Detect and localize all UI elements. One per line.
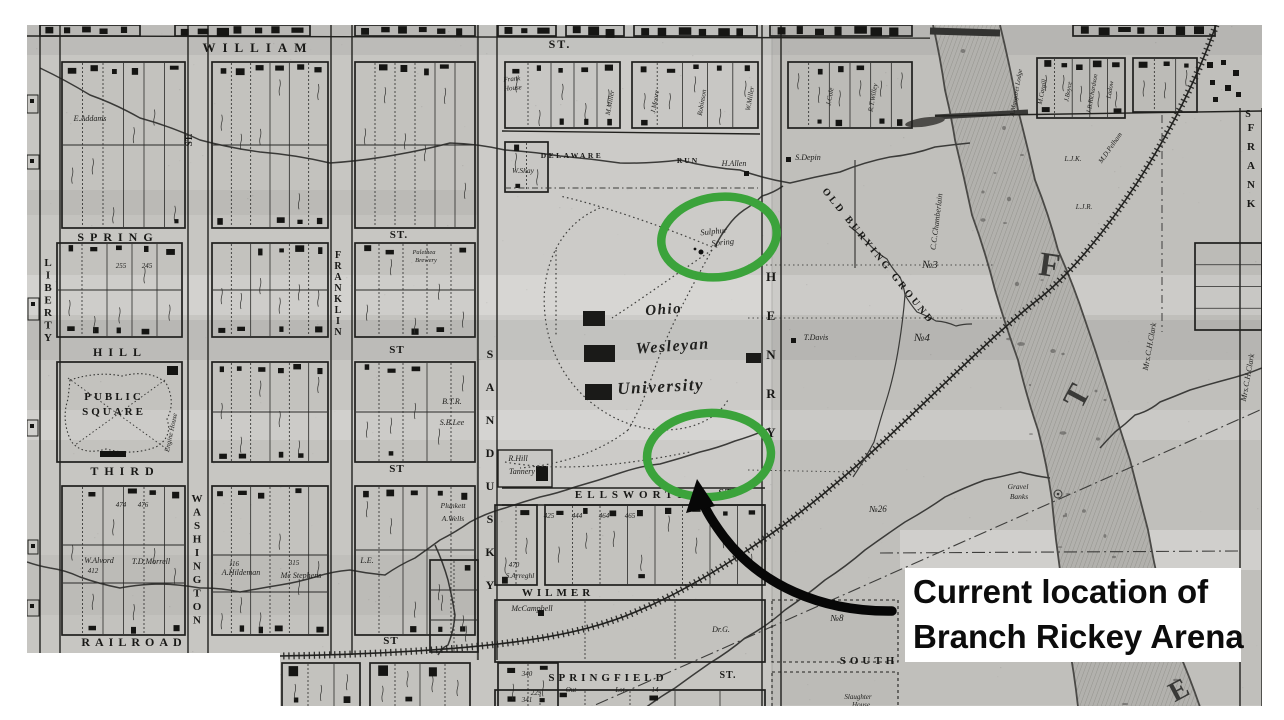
building — [295, 488, 301, 493]
building — [170, 66, 179, 70]
building — [217, 28, 229, 37]
building — [255, 28, 262, 34]
paper-noise — [48, 375, 49, 376]
building — [537, 65, 541, 71]
paper-noise — [624, 274, 625, 275]
building — [818, 120, 822, 124]
place-label: Gravel — [1008, 482, 1029, 491]
paper-noise — [869, 231, 870, 232]
building — [797, 26, 803, 34]
paper-noise — [502, 240, 503, 241]
river-texture-blob — [981, 191, 984, 194]
building — [889, 28, 898, 37]
building — [745, 65, 750, 71]
paper-noise — [1155, 42, 1156, 43]
building — [411, 491, 418, 496]
building — [100, 451, 126, 457]
spring-dot — [694, 248, 697, 251]
building — [1042, 107, 1050, 112]
building — [293, 364, 301, 369]
city-block — [175, 25, 310, 36]
street-label: ST — [383, 635, 398, 647]
paper-noise — [961, 309, 962, 310]
paper-noise — [1249, 192, 1250, 193]
building — [667, 69, 675, 73]
street-label: SOUTH — [840, 655, 899, 667]
building — [838, 66, 844, 72]
building — [132, 68, 138, 75]
paper-noise — [692, 55, 693, 56]
building — [30, 159, 34, 163]
building — [220, 366, 224, 372]
paper-noise — [839, 178, 840, 179]
place-label: A.Hildeman — [221, 568, 260, 577]
building — [112, 69, 117, 74]
paper-noise — [731, 299, 732, 300]
building — [1081, 26, 1089, 34]
place-label: Banks — [1010, 492, 1028, 501]
building — [219, 454, 227, 459]
paper-noise — [842, 572, 843, 573]
place-label: №8 — [830, 613, 844, 623]
building — [45, 27, 53, 34]
river-texture-blob — [1006, 338, 1012, 340]
place-label: 464 — [599, 512, 610, 520]
place-label: 116 — [229, 560, 239, 568]
place-label: PUBLIC — [84, 391, 144, 403]
paper-noise — [695, 598, 696, 599]
building — [89, 626, 97, 631]
river-texture-blob — [994, 172, 997, 174]
building — [31, 302, 35, 306]
paper-noise — [618, 591, 619, 592]
paper-noise — [827, 243, 828, 244]
paper-noise — [192, 651, 193, 652]
paper-noise — [827, 407, 828, 408]
building — [744, 171, 749, 176]
river-texture-blob — [1015, 282, 1019, 286]
place-label: A.Wells — [441, 514, 465, 523]
building — [172, 492, 179, 499]
street-label: ST. — [549, 37, 572, 51]
building — [30, 99, 34, 103]
building — [30, 424, 34, 428]
place-label: Plunkett — [440, 501, 467, 510]
building — [584, 119, 588, 125]
place-label: Frank — [502, 74, 522, 84]
place-label: H.Allen — [721, 159, 747, 168]
street-label: RUN — [677, 156, 699, 165]
paper-noise — [997, 676, 998, 677]
river-texture-blob — [1082, 509, 1086, 513]
paper-noise — [803, 387, 804, 388]
paper-noise — [1000, 667, 1001, 668]
place-label: 476 — [138, 501, 149, 509]
paper-noise — [855, 356, 856, 357]
building — [378, 665, 388, 676]
building — [641, 66, 647, 72]
building — [637, 510, 643, 516]
building — [573, 26, 581, 33]
building — [238, 491, 247, 495]
building — [749, 510, 755, 514]
building — [512, 69, 519, 74]
paper-noise — [526, 289, 527, 290]
building — [515, 184, 520, 188]
building — [521, 28, 527, 33]
building — [638, 574, 645, 578]
paper-noise — [161, 33, 162, 34]
building — [291, 28, 303, 33]
building — [1236, 92, 1241, 97]
place-label: ST. — [184, 134, 194, 147]
building — [315, 326, 322, 332]
building — [665, 508, 671, 514]
building — [438, 491, 443, 496]
street-label: WILMER — [522, 587, 594, 599]
paper-noise — [1194, 118, 1195, 119]
river-texture-blob — [1061, 353, 1064, 355]
paper-noise — [906, 469, 907, 470]
building — [256, 65, 264, 70]
building — [317, 218, 322, 224]
place-label: L.J.K. — [1064, 155, 1082, 163]
building — [791, 338, 796, 343]
paper-noise — [795, 551, 796, 552]
building — [121, 27, 127, 33]
river-texture-blob — [980, 218, 985, 222]
paper-noise — [1208, 379, 1209, 380]
river-bridge — [930, 31, 1000, 33]
annotation-label-line2: Branch Rickey Arena — [913, 614, 1241, 659]
paper-noise — [190, 162, 191, 163]
building — [381, 27, 390, 32]
building — [91, 65, 98, 71]
paper-noise — [531, 391, 532, 392]
paper-noise — [1221, 89, 1222, 90]
place-label: S.Depin — [795, 153, 821, 162]
building — [1225, 85, 1231, 91]
building — [363, 491, 369, 497]
building — [815, 29, 824, 35]
building — [239, 454, 246, 459]
paper-noise — [990, 306, 991, 307]
building — [857, 66, 865, 71]
place-label: Out — [566, 686, 578, 694]
building — [277, 217, 285, 223]
place-label: Slaughter — [844, 693, 871, 701]
river-texture-blob — [1058, 546, 1063, 548]
river-texture-blob — [1122, 703, 1129, 705]
building — [1184, 64, 1188, 68]
building — [1137, 27, 1144, 34]
river-texture-blob — [1007, 197, 1011, 202]
building — [410, 626, 416, 632]
paper-noise — [1026, 520, 1027, 521]
paper-noise — [1185, 122, 1186, 123]
place-label: 315 — [288, 559, 300, 567]
paper-noise — [890, 145, 891, 146]
building — [316, 627, 323, 633]
building — [1176, 26, 1185, 35]
building — [610, 511, 617, 517]
place-label: 474 — [116, 501, 127, 509]
building — [117, 328, 121, 334]
place-label: Brewery — [415, 257, 437, 264]
building — [389, 451, 394, 455]
building — [412, 329, 419, 335]
river-texture-blob — [1060, 431, 1067, 435]
screenshot-root: WILLIAMST.SPRINGST.HILLSTTHIRDSTRAILROAD… — [0, 0, 1284, 720]
building — [1076, 65, 1083, 71]
street-label: DELAWARE — [541, 151, 604, 160]
building — [1210, 80, 1215, 85]
building — [259, 627, 263, 634]
paper-noise — [806, 284, 807, 285]
building — [318, 247, 322, 254]
building — [31, 544, 35, 548]
paper-noise — [863, 185, 864, 186]
paper-noise — [584, 334, 585, 335]
paper-noise — [571, 208, 572, 209]
paper-noise — [28, 422, 29, 423]
building — [736, 28, 743, 36]
campus-building — [583, 311, 605, 326]
street-label: SPRINGFIELD — [548, 672, 667, 684]
place-label: 341 — [521, 696, 533, 704]
building — [275, 66, 284, 71]
building — [90, 247, 97, 251]
river-texture-blob — [1096, 437, 1100, 440]
paper-noise — [1120, 166, 1121, 167]
paper-noise — [64, 682, 65, 683]
street-label: WILLIAM — [202, 40, 313, 55]
building — [588, 27, 599, 36]
building — [461, 493, 467, 500]
spring-dot — [699, 250, 704, 255]
building — [429, 667, 437, 676]
paper-noise — [1214, 41, 1215, 42]
paper-noise — [334, 411, 335, 412]
paper-noise — [1128, 341, 1129, 342]
paper-noise — [338, 583, 339, 584]
place-label: 14 — [652, 686, 660, 694]
place-label: №3 — [921, 259, 938, 271]
building — [583, 508, 588, 514]
building — [1114, 108, 1122, 112]
building — [514, 145, 519, 152]
river-texture-blob — [1104, 534, 1107, 538]
paper-noise — [710, 379, 711, 380]
paper-noise — [1118, 187, 1119, 188]
building — [854, 26, 867, 34]
place-label: SQUARE — [82, 406, 146, 418]
place-label: B.T.R. — [442, 397, 462, 406]
paper-noise — [1091, 125, 1092, 126]
building — [718, 28, 730, 36]
building — [778, 27, 786, 34]
paper-noise — [954, 498, 955, 499]
place-label: Tannery — [509, 467, 535, 476]
paper-noise — [882, 523, 883, 524]
building — [217, 218, 223, 225]
building — [556, 511, 563, 515]
place-label: 444 — [572, 512, 583, 520]
building — [520, 510, 529, 515]
paper-noise — [1098, 223, 1099, 224]
place-label: W.Shay — [512, 166, 535, 175]
river-texture-blob — [1104, 399, 1107, 401]
building — [537, 28, 549, 34]
building — [198, 29, 209, 35]
building — [234, 26, 242, 33]
building — [279, 326, 283, 332]
paper-noise — [502, 186, 503, 187]
building — [67, 326, 75, 331]
building — [131, 627, 136, 634]
building — [818, 69, 823, 75]
building — [64, 27, 70, 33]
building — [275, 626, 283, 632]
paper-noise — [1172, 149, 1173, 150]
paper-noise — [1257, 183, 1258, 184]
building — [181, 29, 189, 36]
building — [459, 248, 466, 253]
building — [279, 248, 284, 252]
building — [150, 490, 156, 495]
annotation-label-line1: Current location of — [913, 569, 1241, 614]
place-label: House — [503, 83, 523, 93]
place-label: R.Hill — [507, 454, 528, 463]
place-label: Lot — [614, 686, 625, 694]
paper-noise — [929, 114, 930, 115]
building — [167, 366, 178, 375]
place-label: 225 — [531, 689, 542, 697]
place-label: №4 — [913, 332, 930, 344]
building — [30, 604, 34, 608]
building — [1157, 27, 1164, 34]
paper-noise — [684, 476, 685, 477]
place-label: №26 — [868, 504, 887, 514]
place-label: 412 — [88, 567, 99, 575]
river-texture-blob — [1017, 342, 1025, 346]
building — [365, 364, 370, 370]
building — [398, 26, 407, 33]
paper-noise — [1182, 157, 1183, 158]
building — [693, 65, 698, 70]
annotation-label-box: Current location of Branch Rickey Arena — [905, 568, 1241, 662]
paper-noise — [987, 555, 988, 556]
building — [505, 27, 513, 34]
building — [465, 565, 471, 571]
place-label: Mc Stephens — [280, 571, 322, 580]
paper-noise — [1242, 687, 1243, 688]
paper-noise — [460, 45, 461, 46]
building — [217, 491, 223, 496]
paper-noise — [1188, 421, 1189, 422]
building — [440, 64, 449, 68]
building — [1044, 60, 1051, 67]
place-label: E.Addams — [73, 114, 107, 123]
building — [258, 367, 265, 372]
place-label: Palethea — [411, 249, 435, 256]
place-label: T.Davis — [804, 333, 829, 342]
building — [379, 64, 388, 70]
building — [606, 29, 615, 38]
place-label: 255 — [116, 262, 127, 270]
paper-noise — [599, 596, 600, 597]
place-label: S — [1245, 109, 1251, 120]
paper-noise — [1200, 511, 1201, 512]
building — [560, 119, 564, 125]
building — [836, 120, 843, 126]
place-label: Ohio — [645, 301, 683, 320]
paper-noise — [1114, 171, 1115, 172]
building — [405, 697, 412, 702]
building — [68, 68, 77, 74]
place-label: 470 — [509, 561, 520, 569]
building — [237, 366, 242, 371]
paper-noise — [778, 211, 779, 212]
building — [386, 490, 394, 497]
campus-building — [746, 353, 761, 363]
river-texture-blob — [1029, 384, 1031, 386]
paper-noise — [903, 137, 904, 138]
gravel-banks-symbol — [1057, 493, 1060, 496]
campus-building — [584, 345, 615, 362]
building — [278, 368, 284, 373]
place-label: 340 — [521, 670, 533, 678]
building — [1112, 62, 1120, 67]
street-label: HILL — [93, 345, 147, 359]
paper-noise — [494, 336, 495, 337]
river-texture-blob — [961, 49, 966, 53]
place-label: L.J.R. — [1075, 203, 1093, 211]
paper-noise — [969, 517, 970, 518]
place-label: 425 — [544, 512, 555, 520]
place-label: Dr.G. — [711, 625, 730, 634]
building — [364, 245, 371, 251]
paper-noise — [862, 484, 863, 485]
paper-noise — [290, 59, 291, 60]
building — [221, 68, 227, 74]
paper-noise — [346, 277, 347, 278]
paper-noise — [350, 285, 351, 286]
building — [723, 511, 728, 515]
building — [142, 329, 150, 335]
street-label: SPRING — [77, 230, 158, 244]
city-block — [772, 672, 898, 707]
paper-noise — [766, 558, 767, 559]
building — [128, 489, 137, 494]
paper-noise — [50, 203, 51, 204]
river-texture-blob — [1029, 433, 1033, 435]
paper-noise — [193, 64, 194, 65]
paper-noise — [910, 274, 911, 275]
paper-noise — [1241, 151, 1242, 152]
building — [1139, 62, 1148, 68]
building — [218, 328, 225, 333]
building — [1233, 70, 1239, 76]
building — [717, 66, 722, 71]
building — [699, 29, 706, 36]
paper-noise — [1243, 672, 1244, 673]
paper-noise — [1231, 506, 1232, 507]
paper-noise — [189, 422, 190, 423]
paper-noise — [632, 595, 633, 596]
river-texture-blob — [1003, 222, 1007, 224]
building — [69, 245, 74, 251]
